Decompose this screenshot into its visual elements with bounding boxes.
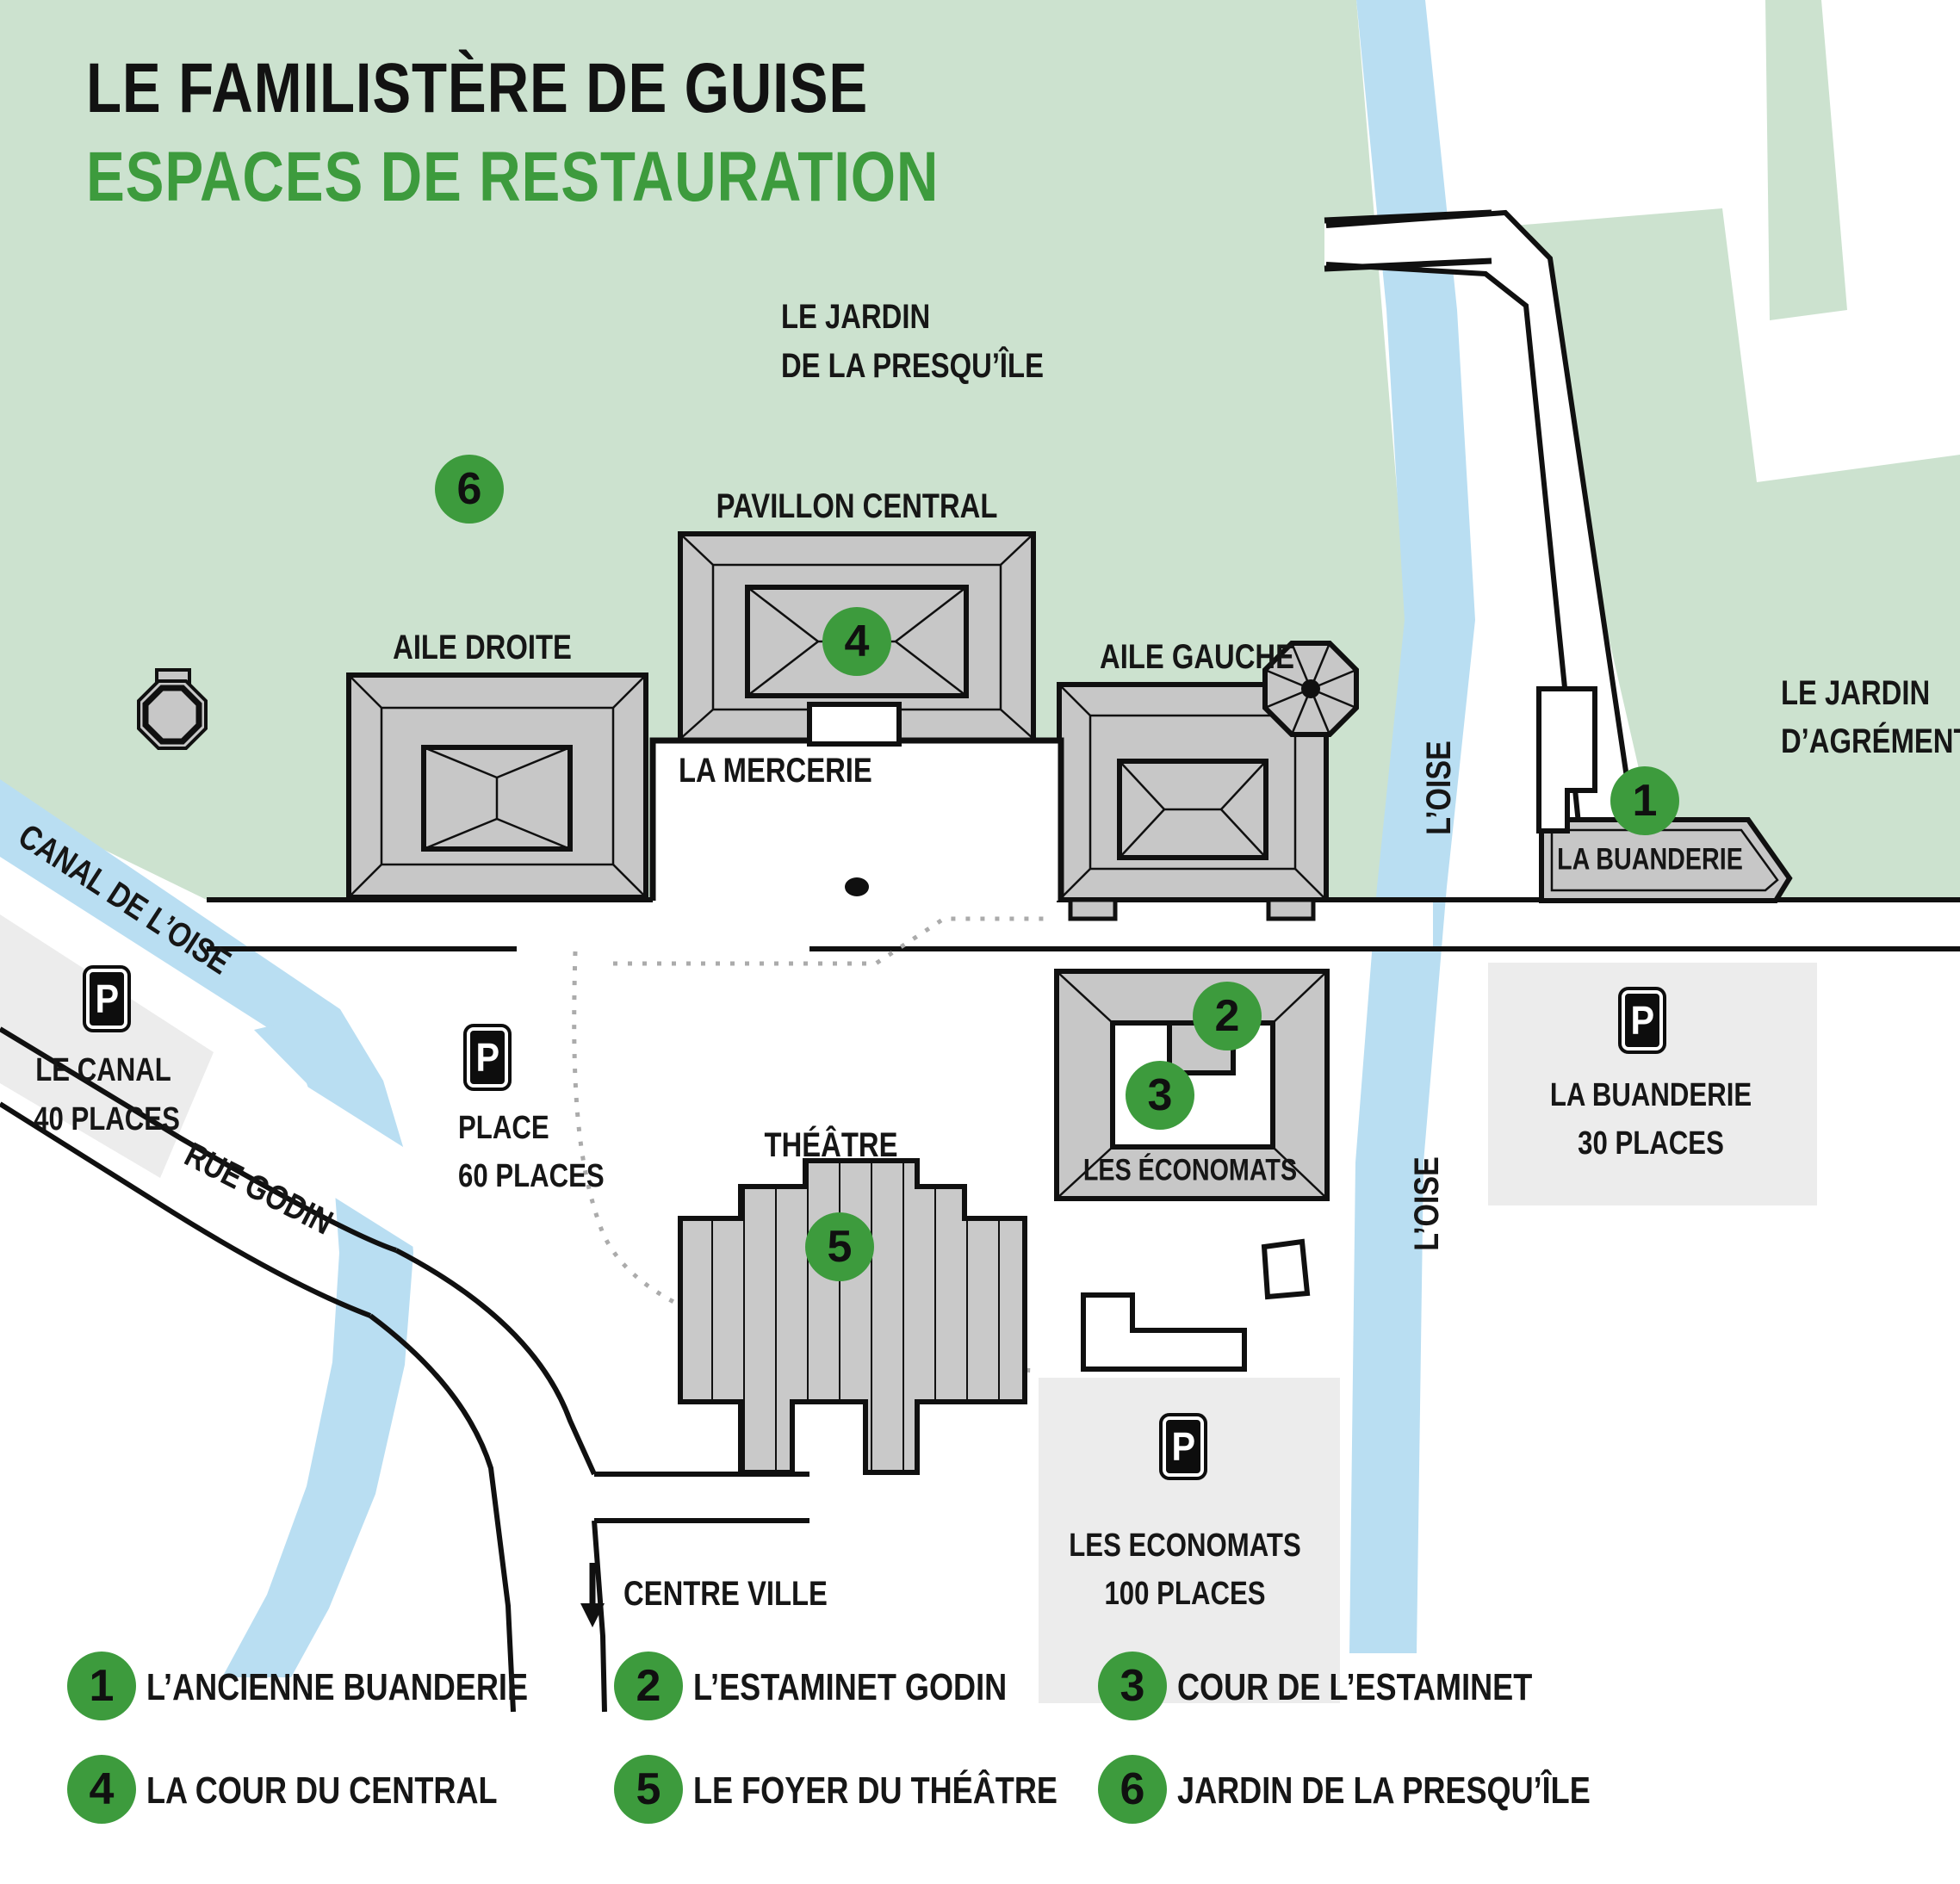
map-marker-6-number: 6 <box>457 463 482 515</box>
legend-item-3-label: COUR DE L’ESTAMINET <box>1177 1666 1532 1709</box>
map-marker-3-number: 3 <box>1148 1069 1173 1121</box>
legend-marker-4-number: 4 <box>90 1763 115 1815</box>
label-jardin-presquile-line2: DE LA PRESQU’ÎLE <box>781 346 1044 386</box>
label-aile-droite: AILE DROITE <box>393 628 572 667</box>
legend-item-2-label: L’ESTAMINET GODIN <box>693 1666 1007 1709</box>
parking-p-glyph: P <box>95 976 119 1022</box>
road-over-river <box>1337 902 1433 948</box>
legend-marker-2-number: 2 <box>636 1660 661 1712</box>
outbuilding-small <box>1264 1242 1307 1297</box>
label-la-buanderie-building: LA BUANDERIE <box>1557 843 1743 878</box>
label-les-economats-building: LES ÉCONOMATS <box>1083 1154 1297 1189</box>
parking-icon-place: P <box>463 1024 512 1091</box>
parking-canal-capacity: 40 PLACES <box>34 1100 180 1138</box>
map-marker-2-number: 2 <box>1215 990 1240 1042</box>
parking-buanderie-name: LA BUANDERIE <box>1550 1076 1752 1114</box>
parking-icon-economats: P <box>1159 1413 1207 1480</box>
map-marker-1-number: 1 <box>1633 775 1658 827</box>
legend-item-5-label: LE FOYER DU THÉÂTRE <box>693 1769 1058 1813</box>
legend-marker-4: 4 <box>67 1755 136 1824</box>
parking-icon-canal: P <box>83 965 131 1032</box>
map-stage: LE FAMILISTÈRE DE GUISE ESPACES DE RESTA… <box>0 0 1960 1884</box>
map-marker-4-number: 4 <box>845 616 870 667</box>
courtyard-dot <box>845 877 869 896</box>
parking-icon-buanderie: P <box>1618 987 1666 1054</box>
parking-canal-name: LE CANAL <box>35 1051 171 1089</box>
legend-marker-1: 1 <box>67 1652 136 1720</box>
map-marker-2: 2 <box>1193 982 1262 1050</box>
legend-marker-5: 5 <box>614 1755 683 1824</box>
outbuilding-l-shape <box>1083 1295 1244 1369</box>
page-title: LE FAMILISTÈRE DE GUISE <box>86 47 868 129</box>
label-aile-gauche: AILE GAUCHE <box>1100 637 1294 677</box>
label-jardin-agrement-line2: D’AGRÉMENT <box>1781 722 1960 761</box>
legend-item-6-label: JARDIN DE LA PRESQU’ÎLE <box>1177 1769 1591 1813</box>
legend-marker-5-number: 5 <box>636 1763 661 1815</box>
label-jardin-presquile-line1: LE JARDIN <box>781 297 930 337</box>
parking-p-glyph: P <box>1630 997 1654 1044</box>
parking-p-glyph: P <box>475 1034 499 1081</box>
parking-p-glyph: P <box>1171 1423 1195 1470</box>
parking-place-capacity: 60 PLACES <box>458 1157 605 1195</box>
label-la-mercerie: LA MERCERIE <box>679 751 872 790</box>
parking-economats-name: LES ECONOMATS <box>1069 1527 1300 1565</box>
label-oise-lower: L’OISE <box>1407 1156 1447 1251</box>
legend-item-1-label: L’ANCIENNE BUANDERIE <box>146 1666 528 1709</box>
map-marker-1: 1 <box>1610 766 1679 835</box>
building-aile-droite <box>349 675 646 897</box>
legend-marker-2: 2 <box>614 1652 683 1720</box>
map-marker-5: 5 <box>805 1212 874 1281</box>
map-marker-6: 6 <box>435 455 504 524</box>
label-jardin-agrement-line1: LE JARDIN <box>1781 673 1930 713</box>
label-pavillon-central: PAVILLON CENTRAL <box>716 486 998 526</box>
parking-buanderie-capacity: 30 PLACES <box>1578 1125 1724 1162</box>
park-area-topright-band <box>1765 0 1847 320</box>
label-centre-ville: CENTRE VILLE <box>623 1574 828 1614</box>
page-subtitle: ESPACES DE RESTAURATION <box>86 136 939 218</box>
legend-marker-6: 6 <box>1098 1755 1167 1824</box>
legend-item-4-label: LA COUR DU CENTRAL <box>146 1769 498 1813</box>
building-theatre <box>680 1154 1025 1477</box>
parking-economats-capacity: 100 PLACES <box>1104 1575 1265 1613</box>
parking-place-name: PLACE <box>458 1109 549 1147</box>
map-marker-5-number: 5 <box>828 1221 853 1273</box>
legend-marker-3-number: 3 <box>1120 1660 1145 1712</box>
label-theatre: THÉÂTRE <box>765 1125 898 1165</box>
label-oise-upper: L’OISE <box>1419 741 1459 835</box>
map-marker-4: 4 <box>822 607 891 676</box>
legend-marker-1-number: 1 <box>90 1660 115 1712</box>
map-marker-3: 3 <box>1126 1061 1194 1130</box>
legend-marker-6-number: 6 <box>1120 1763 1145 1815</box>
legend-marker-3: 3 <box>1098 1652 1167 1720</box>
site-map-graphic <box>0 0 1960 1884</box>
